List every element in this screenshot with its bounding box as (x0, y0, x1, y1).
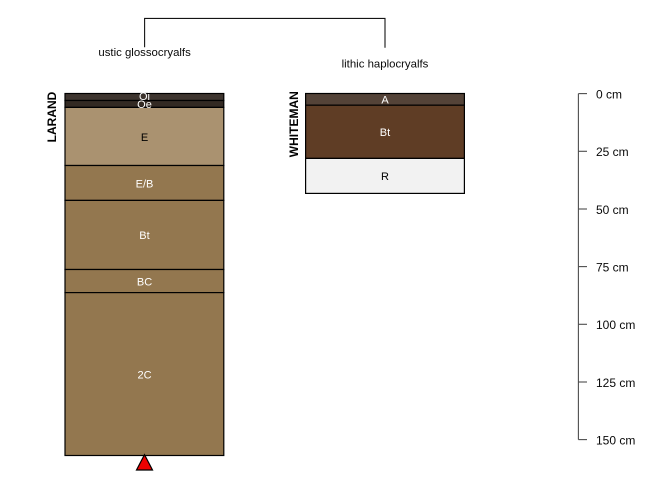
svg-text:Oe: Oe (137, 99, 152, 111)
svg-text:WHITEMAN: WHITEMAN (287, 91, 301, 157)
svg-text:lithic haplocryalfs: lithic haplocryalfs (342, 59, 429, 71)
svg-text:Bt: Bt (139, 230, 149, 242)
svg-text:50 cm: 50 cm (596, 203, 629, 217)
svg-text:75 cm: 75 cm (596, 260, 629, 274)
svg-text:ustic glossocryalfs: ustic glossocryalfs (98, 47, 191, 59)
svg-text:BC: BC (137, 276, 152, 288)
svg-text:E: E (141, 132, 148, 144)
svg-text:Bt: Bt (380, 127, 390, 139)
svg-text:A: A (381, 95, 389, 107)
svg-text:100 cm: 100 cm (596, 318, 635, 332)
svg-text:2C: 2C (137, 369, 151, 381)
svg-text:125 cm: 125 cm (596, 376, 635, 390)
svg-text:R: R (381, 171, 389, 183)
svg-text:LARAND: LARAND (45, 91, 59, 142)
svg-text:0 cm: 0 cm (596, 87, 622, 101)
svg-text:150 cm: 150 cm (596, 433, 635, 447)
svg-text:25 cm: 25 cm (596, 145, 629, 159)
svg-text:E/B: E/B (136, 178, 154, 190)
